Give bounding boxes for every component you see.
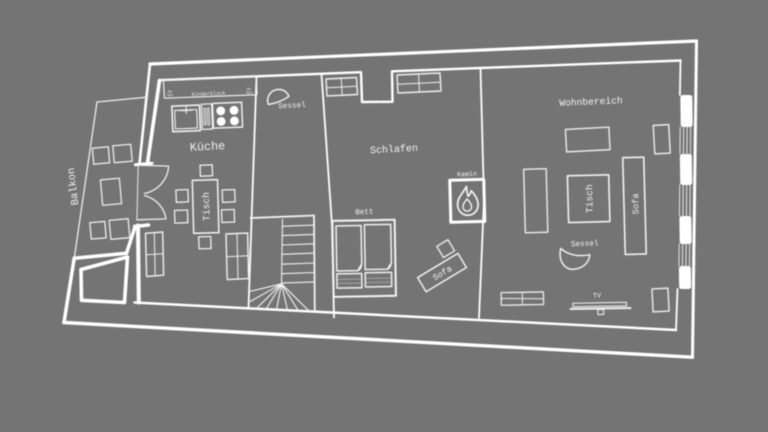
svg-text:Spü: Spü — [246, 90, 252, 95]
svg-text:Küche: Küche — [190, 139, 226, 155]
svg-text:Bett: Bett — [355, 209, 374, 218]
svg-text:Schlafen: Schlafen — [370, 143, 419, 157]
svg-text:Spü: Spü — [167, 93, 173, 98]
svg-text:Sofa: Sofa — [631, 193, 642, 214]
svg-text:TV: TV — [593, 292, 602, 300]
svg-text:Sessel: Sessel — [278, 102, 306, 111]
svg-text:Kamin: Kamin — [457, 171, 477, 179]
svg-text:Tisch: Tisch — [201, 192, 213, 221]
svg-text:Tisch: Tisch — [584, 184, 596, 213]
svg-text:Sessel: Sessel — [571, 240, 599, 249]
